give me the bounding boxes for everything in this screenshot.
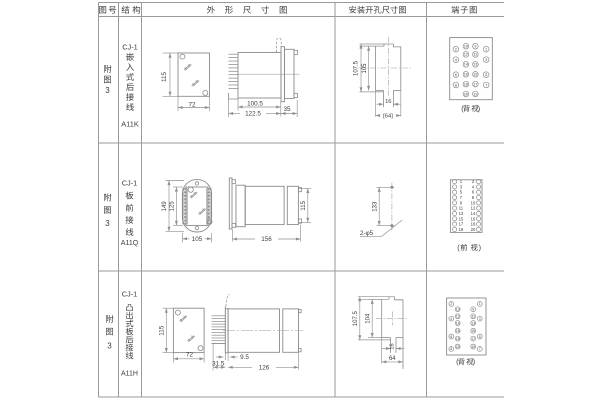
svg-text:9: 9 [460, 200, 463, 205]
svg-text:8: 8 [472, 195, 475, 200]
svg-text:31.5: 31.5 [212, 360, 225, 367]
svg-text:3: 3 [460, 184, 463, 189]
svg-text:17: 17 [471, 337, 475, 341]
svg-text:19: 19 [473, 92, 477, 96]
svg-text:CJ-1: CJ-1 [122, 179, 138, 188]
svg-text:): ) [478, 104, 480, 113]
svg-text:16: 16 [471, 216, 476, 221]
svg-text:72: 72 [186, 352, 194, 359]
svg-text:15: 15 [459, 216, 464, 221]
svg-text:12: 12 [464, 53, 468, 57]
svg-text:(: ( [457, 243, 460, 252]
svg-text:6: 6 [472, 190, 475, 195]
svg-text:2: 2 [455, 48, 457, 52]
svg-text:133: 133 [372, 201, 378, 212]
svg-text:107.5: 107.5 [353, 311, 359, 327]
svg-text:9: 9 [472, 308, 474, 312]
svg-text:18: 18 [471, 222, 476, 227]
svg-text:A11K: A11K [121, 120, 139, 129]
svg-text:1: 1 [485, 48, 487, 52]
svg-text:10: 10 [471, 200, 476, 205]
svg-text:107.5: 107.5 [354, 60, 360, 76]
svg-text:14: 14 [456, 321, 460, 325]
svg-text:19: 19 [471, 345, 475, 349]
svg-text:2: 2 [450, 302, 452, 306]
svg-text:12: 12 [471, 206, 476, 211]
svg-text:10: 10 [464, 45, 468, 49]
svg-text:3: 3 [105, 86, 110, 95]
svg-text:126: 126 [259, 365, 270, 372]
svg-text:[64]: [64] [383, 114, 393, 120]
svg-text:13: 13 [473, 63, 477, 67]
svg-text:35: 35 [283, 106, 291, 113]
svg-text:7: 7 [485, 83, 487, 87]
svg-text:7: 7 [479, 347, 481, 351]
svg-text:72: 72 [188, 101, 196, 108]
svg-text:122.5: 122.5 [245, 111, 261, 118]
svg-text:2-φ5: 2-φ5 [360, 230, 374, 237]
svg-text:CJ-1: CJ-1 [122, 43, 138, 52]
svg-text:18: 18 [464, 82, 468, 86]
svg-text:18: 18 [456, 337, 460, 341]
svg-text:105: 105 [192, 236, 203, 243]
svg-text:5: 5 [479, 335, 481, 339]
svg-text:8: 8 [450, 347, 452, 351]
svg-text:7: 7 [460, 195, 463, 200]
svg-text:8: 8 [455, 83, 457, 87]
svg-text:4: 4 [455, 58, 457, 62]
svg-text:125: 125 [170, 201, 176, 212]
svg-text:6: 6 [455, 73, 457, 77]
svg-text:20: 20 [471, 227, 476, 232]
svg-text:16: 16 [456, 329, 460, 333]
svg-text:6: 6 [450, 335, 452, 339]
svg-text:3: 3 [479, 317, 481, 321]
svg-text:15: 15 [473, 73, 477, 77]
svg-text:11: 11 [472, 315, 476, 319]
svg-text:115: 115 [301, 200, 307, 210]
svg-text:14: 14 [471, 211, 476, 216]
svg-text:20: 20 [464, 92, 468, 96]
svg-text:13: 13 [459, 211, 464, 216]
svg-text:64: 64 [389, 356, 396, 362]
svg-text:19: 19 [459, 227, 464, 232]
svg-text:115: 115 [161, 71, 168, 82]
svg-text:(: ( [461, 104, 464, 113]
svg-text:16: 16 [385, 99, 391, 105]
svg-text:5: 5 [460, 190, 463, 195]
svg-text:3: 3 [105, 219, 110, 228]
svg-text:12: 12 [456, 315, 460, 319]
svg-text:149: 149 [162, 201, 168, 212]
svg-text:104: 104 [365, 313, 371, 324]
svg-text:16: 16 [464, 73, 468, 77]
svg-text:): ) [479, 243, 481, 252]
svg-text:3: 3 [485, 58, 487, 62]
svg-text:20: 20 [456, 345, 460, 349]
svg-text:14: 14 [464, 63, 468, 67]
svg-text:17: 17 [459, 222, 464, 227]
svg-text:156: 156 [261, 236, 272, 243]
svg-text:4: 4 [472, 184, 475, 189]
svg-text:3: 3 [107, 342, 112, 351]
svg-text:11: 11 [459, 206, 464, 211]
svg-text:1: 1 [479, 302, 481, 306]
svg-text:16: 16 [390, 343, 396, 349]
svg-text:115: 115 [158, 325, 165, 336]
svg-text:15: 15 [471, 329, 475, 333]
svg-text:100.5: 100.5 [247, 100, 263, 107]
svg-text:9.5: 9.5 [240, 354, 249, 361]
svg-text:17: 17 [473, 82, 477, 86]
svg-text:A11H: A11H [121, 371, 138, 378]
svg-text:4: 4 [450, 317, 452, 321]
svg-text:A11Q: A11Q [121, 240, 139, 247]
svg-text:(: ( [456, 357, 459, 366]
svg-text:105: 105 [362, 63, 368, 74]
svg-text:10: 10 [456, 308, 460, 312]
svg-text:5: 5 [485, 73, 487, 77]
svg-text:13: 13 [471, 321, 475, 325]
svg-text:11: 11 [474, 53, 478, 57]
svg-text:9: 9 [474, 45, 476, 49]
svg-text:CJ-1: CJ-1 [122, 290, 138, 299]
svg-text:): ) [473, 357, 475, 366]
